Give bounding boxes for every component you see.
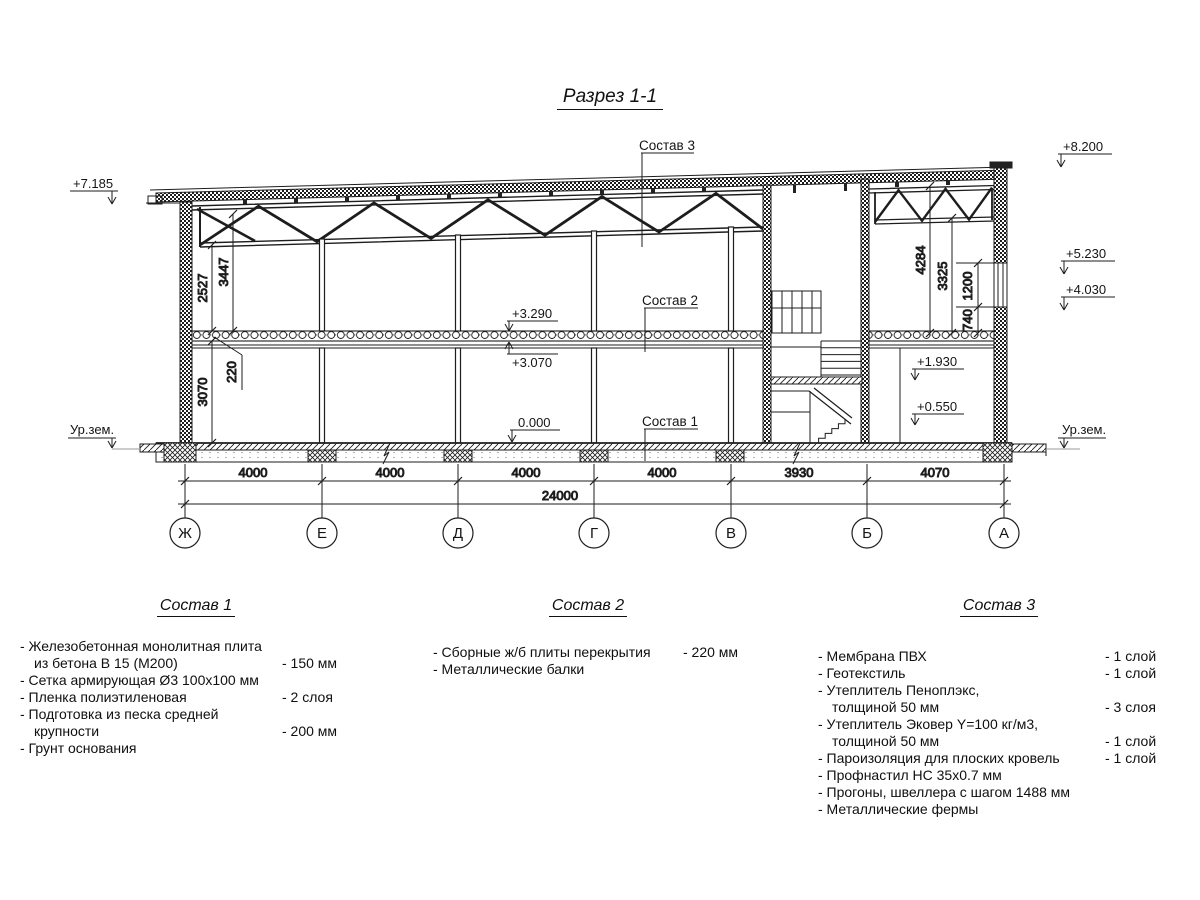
stair-window-grid <box>772 291 821 333</box>
dims-bottom: 4000 4000 4000 4000 3930 4070 24000 <box>178 464 1011 518</box>
legend-item: - Профнастил НС 35x0.7 мм <box>818 767 1180 784</box>
callout-sostav-1: Состав 1 <box>642 414 698 429</box>
ground <box>112 443 1080 464</box>
callout-sostav-2: Состав 2 <box>642 293 698 308</box>
mark-right-parapet: +8.200 <box>1063 139 1103 154</box>
stairwell <box>771 291 862 443</box>
stair-landing <box>771 377 862 384</box>
dim-bay-2: 4000 <box>376 465 405 480</box>
blind-area-left <box>140 444 164 452</box>
legend-item: из бетона В 15 (М200)- 150 мм <box>20 655 372 672</box>
mark-window-sill: +4.030 <box>1066 282 1106 297</box>
blind-area-right <box>1012 444 1046 452</box>
drawing-sheet: Разрез 1-1 <box>0 0 1200 900</box>
legend-sostav-1: Состав 1 - Железобетонная монолитная пли… <box>20 597 372 757</box>
legend-item: - Утеплитель Пеноплэкс, <box>818 682 1180 699</box>
legend-item: - Металлические балки <box>433 661 743 678</box>
legend-3-items: - Мембрана ПВХ- 1 слой - Геотекстиль- 1 … <box>818 648 1180 818</box>
dim-bay-5: 3930 <box>785 465 814 480</box>
mark-left-eave: +7.185 <box>73 176 113 191</box>
legend-item: - Пленка полиэтиленовая- 2 слоя <box>20 689 372 706</box>
legend-item: толщиной 50 мм- 1 слой <box>818 733 1180 750</box>
dim-3070: 3070 <box>195 378 210 407</box>
legend-item: - Металлические фермы <box>818 801 1180 818</box>
legend-item: - Сборные ж/б плиты перекрытия- 220 мм <box>433 644 743 661</box>
legend-item: - Мембрана ПВХ- 1 слой <box>818 648 1180 665</box>
dim-bay-3: 4000 <box>512 465 541 480</box>
legend-sostav-2: Состав 2 - Сборные ж/б плиты перекрытия-… <box>433 597 743 678</box>
dim-bay-4: 4000 <box>648 465 677 480</box>
mark-slab-bottom: +3.070 <box>512 355 552 370</box>
dim-bay-6: 4070 <box>921 465 950 480</box>
dim-3325: 3325 <box>935 262 950 291</box>
axis-bubbles: Ж Е Д Г В Б А <box>170 518 1019 548</box>
axis-e: Е <box>317 525 327 542</box>
dim-total: 24000 <box>542 488 578 503</box>
axis-a: А <box>999 525 1009 542</box>
right-wall-window <box>994 263 1007 307</box>
legend-item: - Железобетонная монолитная плита <box>20 638 372 655</box>
mark-floor-zero: 0.000 <box>518 415 551 430</box>
axis-v: В <box>726 525 736 542</box>
dim-1200: 1200 <box>960 272 975 301</box>
legend-item: - Прогоны, швеллера с шагом 1488 мм <box>818 784 1180 801</box>
upper-flight-treads <box>771 341 861 377</box>
axis-zh: Ж <box>178 525 192 542</box>
dim-4284: 4284 <box>913 246 928 275</box>
mark-window-top: +5.230 <box>1066 246 1106 261</box>
ground-level-right: Ур.зем. <box>1062 422 1106 437</box>
mark-platform: +0.550 <box>917 399 957 414</box>
legend-item: - Подготовка из песка средней <box>20 706 372 723</box>
callout-sostav-3: Состав 3 <box>639 138 695 153</box>
floor-slab <box>192 331 995 348</box>
dim-220: 220 <box>224 361 239 383</box>
mark-landing: +1.930 <box>917 354 957 369</box>
lower-flight <box>771 388 852 443</box>
legend-item: - Пароизоляция для плоских кровель- 1 сл… <box>818 750 1180 767</box>
section-drawing: 2527 3447 220 3070 4284 3325 1200 740 40… <box>0 0 1200 575</box>
legend-3-title: Состав 3 <box>818 597 1180 614</box>
legend-item: крупности- 200 мм <box>20 723 372 740</box>
dim-740: 740 <box>960 309 975 331</box>
right-truss <box>869 186 995 225</box>
legend-2-title: Состав 2 <box>433 597 743 614</box>
dim-bay-1: 4000 <box>239 465 268 480</box>
dim-3447: 3447 <box>216 258 231 287</box>
ground-level-left: Ур.зем. <box>70 422 114 437</box>
legend-item: - Утеплитель Эковер Y=100 кг/м3, <box>818 716 1180 733</box>
legend-sostav-3: Состав 3 - Мембрана ПВХ- 1 слой - Геотек… <box>818 597 1180 818</box>
dims-right: 4284 3325 1200 740 <box>913 182 982 337</box>
legend-item: - Геотекстиль- 1 слой <box>818 665 1180 682</box>
axis-g: Г <box>590 525 598 542</box>
legend-2-items: - Сборные ж/б плиты перекрытия- 220 мм -… <box>433 644 743 678</box>
legend-item: - Грунт основания <box>20 740 372 757</box>
axis-d: Д <box>453 525 463 542</box>
mark-slab-top: +3.290 <box>512 306 552 321</box>
legend-1-items: - Железобетонная монолитная плита из бет… <box>20 638 372 757</box>
legend-item: толщиной 50 мм- 3 слоя <box>818 699 1180 716</box>
legend-item: - Сетка армирующая Ø3 100x100 мм <box>20 672 372 689</box>
legend-1-title: Состав 1 <box>20 597 372 614</box>
dim-2527: 2527 <box>195 274 210 303</box>
axis-b: Б <box>862 525 872 542</box>
